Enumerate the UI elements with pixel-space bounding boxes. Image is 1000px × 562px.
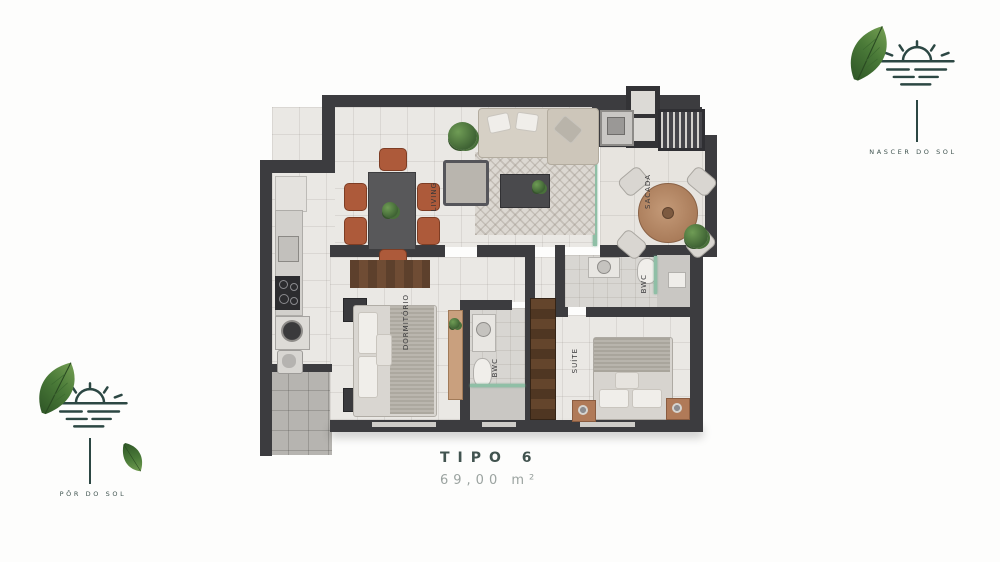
burner	[279, 280, 288, 289]
bed-pillow	[376, 334, 392, 366]
entry-panel	[631, 118, 655, 141]
lamp	[672, 403, 682, 413]
room-label-sacada: SACADA	[644, 174, 652, 209]
living-plant	[448, 122, 477, 150]
dresser-plant	[449, 318, 460, 329]
bwc-basin	[476, 322, 491, 337]
bbq-sink-basin	[607, 117, 625, 135]
lamp	[578, 405, 588, 415]
hall-floor	[460, 257, 555, 302]
plan-title-block: TIPO 6 69,00 m²	[440, 450, 660, 488]
wall-segment	[690, 255, 703, 432]
leaf-icon	[31, 359, 90, 418]
vent-grille	[658, 109, 705, 151]
window	[372, 422, 436, 427]
bed-blanket	[390, 306, 434, 414]
suite-pillow	[615, 372, 639, 389]
room-label-bwc-social: BWC	[491, 358, 499, 377]
kitchen-sink	[278, 236, 299, 262]
room-label-bwc-suite: BWC	[640, 274, 648, 293]
room-label-dormitorio: DORMITÓRIO	[402, 294, 410, 350]
burner	[290, 283, 298, 291]
shower-tray	[668, 272, 686, 288]
wall-segment	[260, 160, 272, 456]
service-floor	[268, 370, 332, 455]
toilet	[473, 358, 492, 387]
shower-glass	[470, 384, 525, 387]
suite-pillow	[599, 389, 629, 408]
window	[482, 422, 516, 427]
wall-segment	[586, 307, 691, 317]
wardrobe	[350, 260, 430, 288]
burner	[279, 294, 289, 304]
logo-caption: NASCER DO SOL	[843, 148, 983, 156]
small-leaf-icon	[111, 439, 151, 479]
dining-chair	[344, 217, 367, 245]
bwc-suite-basin	[597, 260, 611, 274]
dining-chair	[379, 148, 407, 171]
plan-area: 69,00 m²	[440, 473, 660, 488]
page: LIVING SACADA BWC BWC DORMITÓRIO SUÍTE T…	[0, 0, 1000, 562]
logo-caption: PÔR DO SOL	[28, 490, 158, 498]
logo-nascer-do-sol: NASCER DO SOL	[843, 24, 983, 164]
wall-segment	[262, 160, 335, 173]
suite-blanket	[594, 338, 670, 372]
balcony-table-center	[662, 207, 674, 219]
hall-closet	[530, 298, 556, 420]
table-plant	[382, 202, 398, 218]
shower-glass	[654, 256, 657, 294]
burner	[290, 297, 298, 305]
tub-basin	[282, 354, 296, 368]
window	[580, 422, 635, 427]
logo-stem	[89, 438, 91, 484]
balcony-plant	[684, 224, 708, 248]
sofa-pillow	[515, 112, 539, 133]
plan-title: TIPO 6	[440, 450, 660, 466]
dining-chair	[417, 217, 440, 245]
coffee-table-plant	[532, 180, 545, 193]
wall-segment	[560, 307, 568, 317]
room-label-suite: SUÍTE	[571, 348, 579, 373]
dining-chair	[344, 183, 367, 211]
entry-panel	[631, 91, 655, 114]
suite-pillow	[632, 389, 662, 408]
bed-pillow	[358, 312, 378, 354]
kitchen-cabinet	[275, 176, 307, 212]
floor-plan: LIVING SACADA BWC BWC DORMITÓRIO SUÍTE	[260, 86, 732, 460]
logo-por-do-sol: PÔR DO SOL	[28, 358, 158, 503]
armchair	[443, 160, 489, 206]
washer-door	[281, 320, 303, 342]
shower-floor	[470, 387, 525, 420]
logo-stem	[916, 100, 918, 142]
room-label-living: LIVING	[430, 182, 438, 211]
leaf-icon	[841, 22, 904, 85]
bed-pillow	[358, 356, 378, 398]
